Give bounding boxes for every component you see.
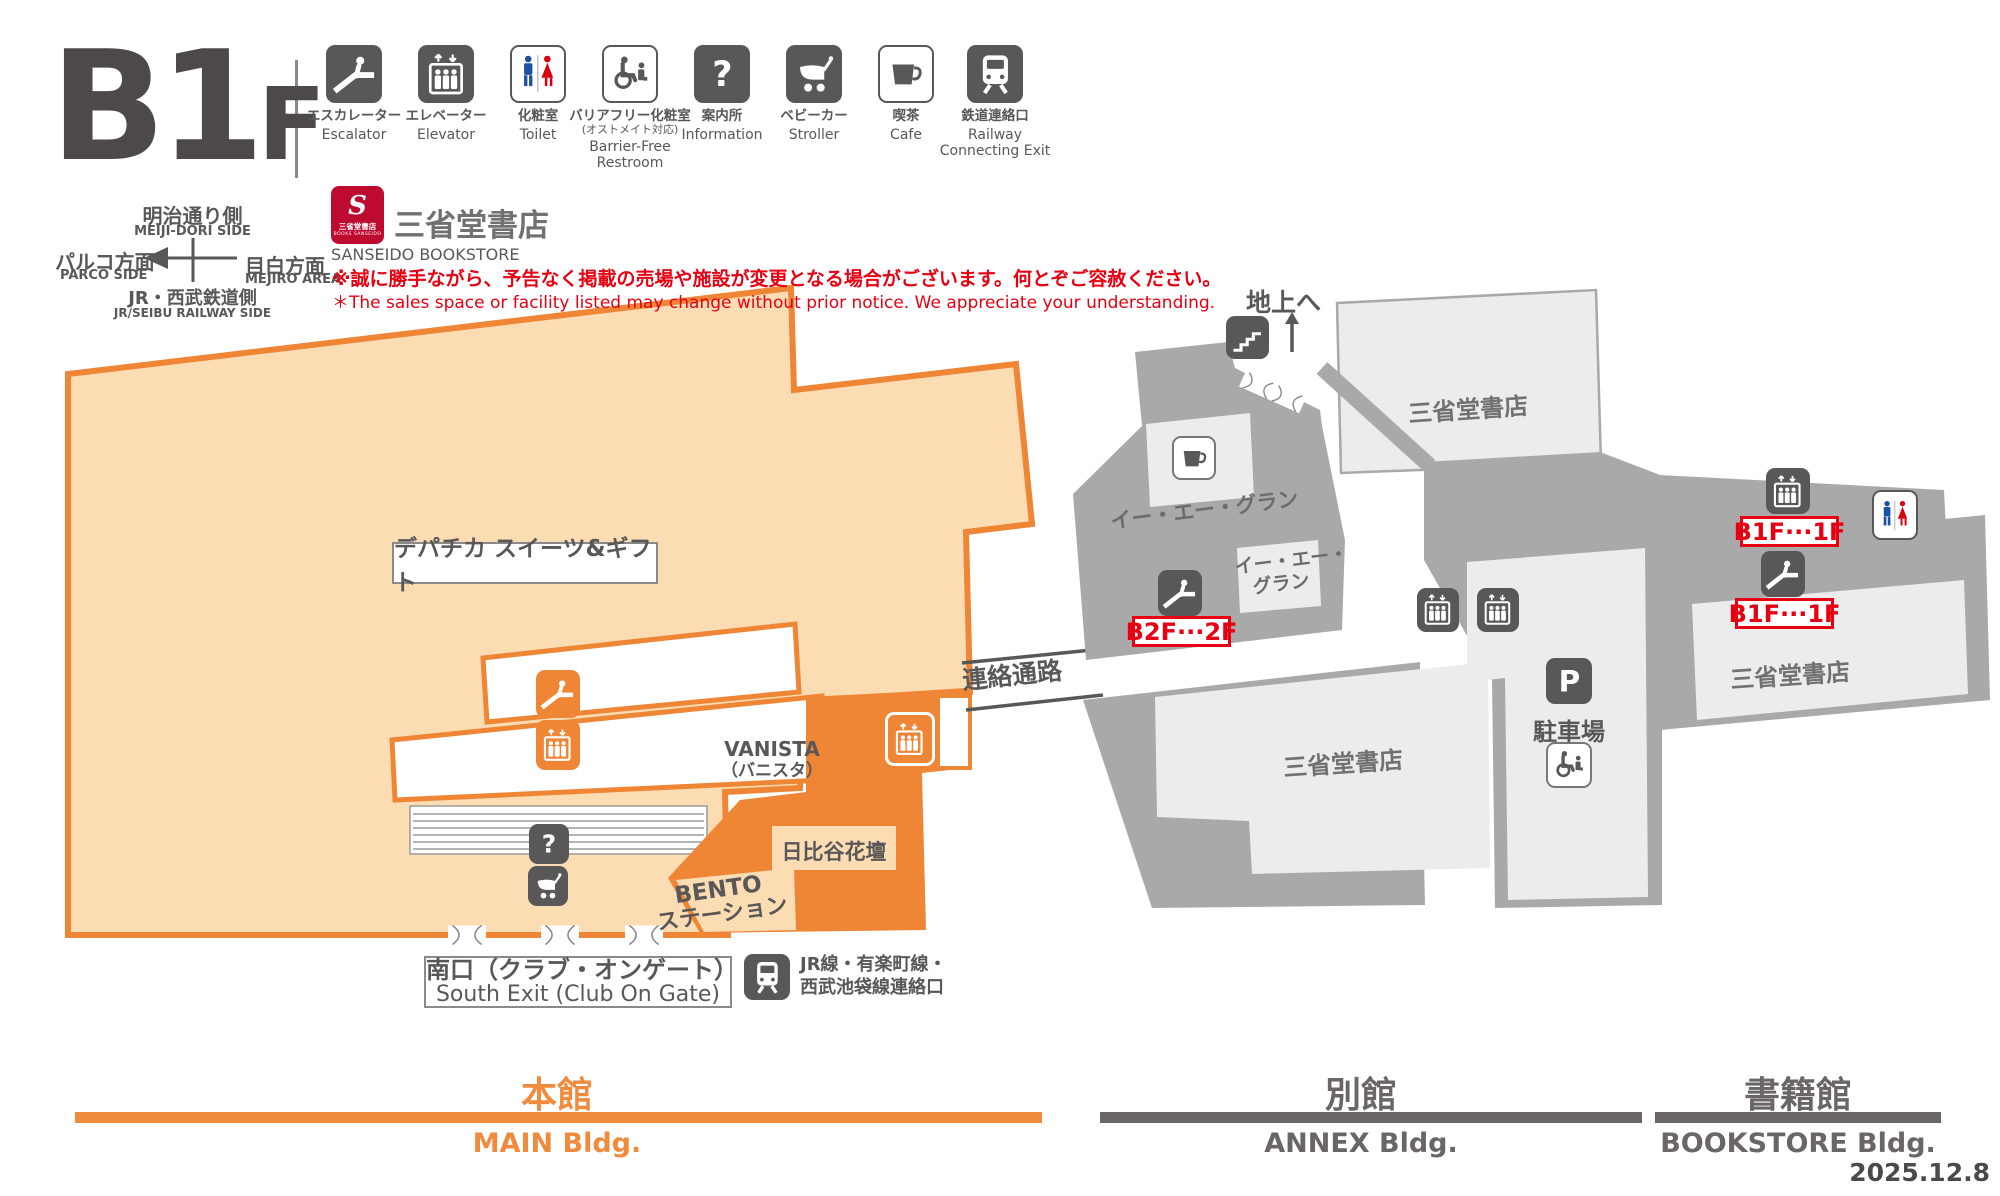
sanseido-top-room	[1337, 290, 1601, 473]
notice-en: ＊The sales space or facility listed may …	[332, 288, 1215, 313]
compass-south-en: JR/SEIBU RAILWAY SIDE	[95, 306, 290, 320]
footer-annex-jp: 別館	[1261, 1066, 1461, 1118]
stairs-icon	[1226, 316, 1269, 359]
elevator-icon	[536, 720, 580, 770]
escalator-icon	[1158, 570, 1202, 616]
stroller-icon	[528, 866, 568, 906]
map-date: 2025.12.8	[1849, 1158, 1990, 1187]
floor-map-page: ? P	[0, 0, 2000, 1196]
door-icon	[448, 926, 486, 945]
escalator-icon	[326, 45, 382, 103]
cafe-icon	[1172, 436, 1216, 480]
elevator-icon	[885, 712, 935, 766]
depachika-label: デパチカ スイーツ&ギフト	[392, 542, 658, 584]
notice-jp: ※誠に勝手ながら、予告なく掲載の売場や施設が変更となる場合がございます。何とぞご…	[332, 264, 1221, 291]
sanseido-logo: S 三省堂書店 BOOKS SANSEIDO	[331, 186, 384, 244]
south-exit-label: 南口（クラブ・オンゲート） South Exit (Club On Gate)	[424, 956, 732, 1008]
footer-book-jp: 書籍館	[1698, 1066, 1898, 1118]
information-icon	[694, 45, 750, 103]
legend-item-railway: 鉄道連絡口 Railway Connecting Exit	[929, 45, 1061, 159]
railway-connection-label: JR線・有楽町線・ 西武池袋線連絡口	[800, 954, 947, 999]
elevator-icon	[418, 45, 474, 103]
vanista-label: VANISTA （バニスタ）	[716, 737, 828, 781]
footer-book-en: BOOKSTORE Bldg.	[1648, 1128, 1948, 1159]
store-name: 三省堂書店	[394, 200, 549, 245]
toilet-icon	[510, 45, 566, 103]
footer-book-bar	[1655, 1112, 1941, 1123]
floor-title: B1F	[50, 18, 319, 195]
railway-icon	[967, 45, 1023, 103]
stroller-icon	[786, 45, 842, 103]
elevator-icon	[1766, 468, 1810, 514]
escalator-icon	[536, 670, 580, 718]
sanseido-logo-mark: S	[348, 193, 367, 219]
to-ground-label: 地上へ	[1246, 283, 1321, 319]
b2f-2f-label: B2F···2F	[1132, 616, 1231, 647]
information-icon	[529, 824, 569, 864]
compass-cross	[144, 238, 237, 282]
hibiya-label: 日比谷花壇	[772, 836, 896, 866]
footer-annex-en: ANNEX Bldg.	[1211, 1128, 1511, 1159]
b1f-1f-label: B1F···1F	[1735, 598, 1834, 629]
door-icon	[541, 926, 579, 945]
compass-west-en: PARCO SIDE	[60, 268, 147, 283]
footer-main-en: MAIN Bldg.	[407, 1128, 707, 1159]
footer-annex-bar	[1100, 1112, 1642, 1123]
barrier-free-icon	[602, 45, 658, 103]
elevator-icon	[1417, 588, 1459, 632]
store-name-en: SANSEIDO BOOKSTORE	[331, 245, 519, 264]
footer-main-bar	[75, 1112, 1042, 1123]
b1f-1f-label: B1F···1F	[1740, 516, 1839, 547]
floor-title-big: B1	[50, 18, 258, 195]
cafe-icon	[878, 45, 934, 103]
railway-icon	[744, 954, 790, 1000]
elevator-icon	[1477, 588, 1519, 632]
toilet-icon	[1872, 490, 1918, 540]
compass-north-en: MEIJI-DORI SIDE	[110, 224, 275, 239]
parking-icon	[1546, 658, 1592, 704]
barrier-free-icon	[1546, 742, 1592, 788]
escalator-icon	[1761, 551, 1805, 597]
footer-main-jp: 本館	[457, 1066, 657, 1118]
